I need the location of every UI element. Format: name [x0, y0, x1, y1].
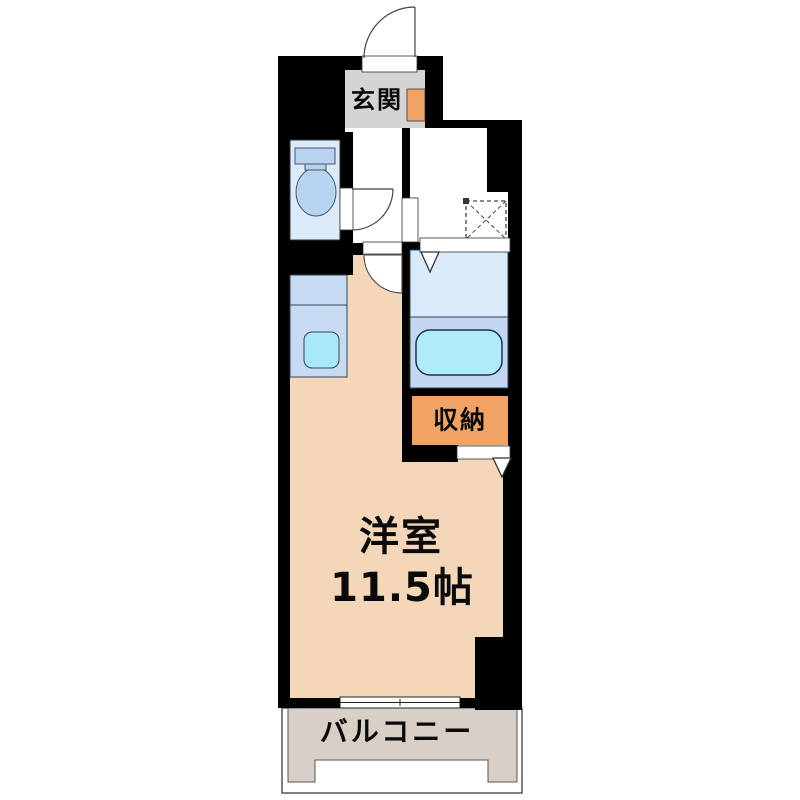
toilet-tank: [295, 148, 335, 164]
wall: [278, 238, 353, 275]
room-name-label: 洋室: [359, 517, 443, 557]
wall: [340, 132, 353, 188]
bathtub-icon: [416, 330, 502, 375]
storage-label: 収納: [433, 408, 487, 433]
bathroom-partition: [420, 238, 510, 252]
kitchen-sink-icon: [304, 332, 339, 368]
wall: [402, 128, 410, 198]
wall: [402, 445, 458, 462]
wall: [342, 243, 363, 255]
balcony-window: [340, 697, 460, 708]
storage-door-opening: [457, 446, 510, 459]
toilet-seat: [305, 164, 326, 170]
wall: [508, 192, 522, 460]
living-room-door-opening: [363, 242, 402, 254]
washing-machine-area-icon: [463, 198, 506, 239]
wall: [475, 637, 522, 710]
entrance-door-opening: [362, 56, 417, 72]
room-size-label: 11.5帖: [330, 568, 474, 608]
washing-machine-corner-mark: [463, 198, 469, 204]
wall: [278, 58, 345, 140]
toilet-bowl: [296, 168, 336, 216]
floorplan-canvas: 玄関 収納 洋室 11.5帖 バルコニー: [0, 0, 800, 800]
wall: [487, 128, 522, 192]
floorplan-drawing: [0, 0, 800, 800]
toilet-door-opening: [340, 188, 353, 230]
wall: [412, 388, 510, 396]
wall: [278, 140, 290, 708]
entrance-label: 玄関: [351, 88, 403, 112]
balcony-label: バルコニー: [320, 718, 474, 746]
shoe-cabinet-icon: [407, 89, 425, 121]
toilet-icon: [295, 148, 336, 216]
washroom-doorway: [402, 198, 418, 242]
